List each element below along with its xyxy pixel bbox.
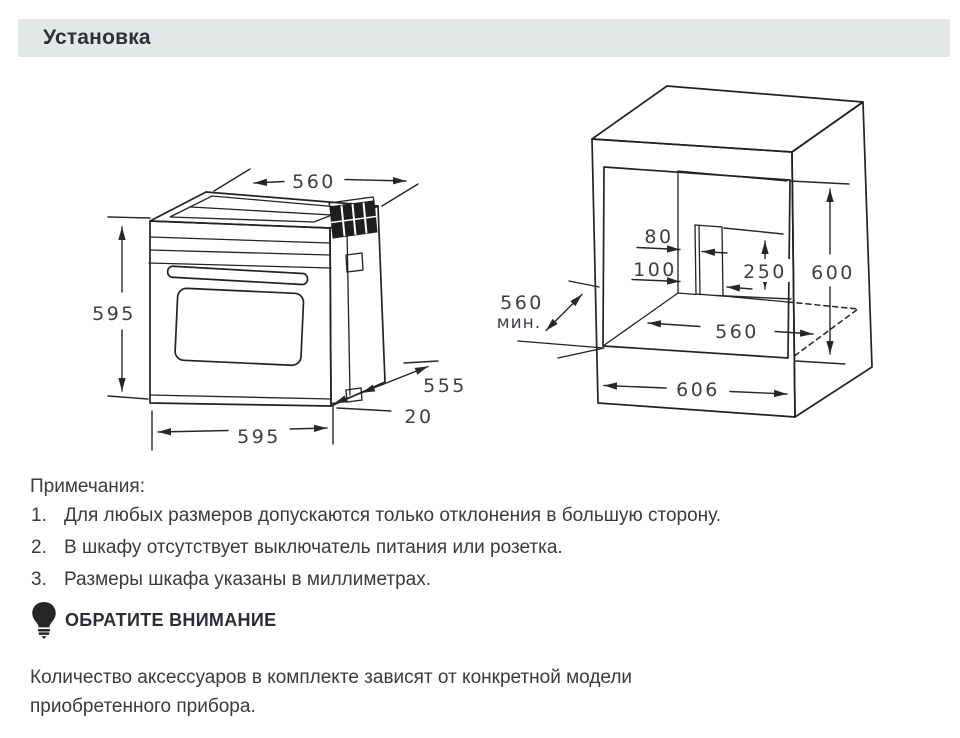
attention-heading: ОБРАТИТЕ ВНИМАНИЕ	[65, 610, 276, 631]
oven-line-art	[149, 192, 385, 406]
closing-line: Количество аксессуаров в комплекте завис…	[30, 663, 632, 692]
notes-heading: Примечания:	[30, 476, 145, 498]
note-number: 3.	[31, 569, 64, 591]
dim-cutout-offset-upper: 80	[637, 226, 727, 253]
page-title: Установка	[18, 26, 151, 50]
note-number: 1.	[31, 505, 64, 527]
svg-text:20: 20	[404, 406, 433, 428]
section-header-bar: Установка	[18, 19, 950, 57]
note-item-3: 3.Размеры шкафа указаны в миллиметрах.	[31, 569, 931, 591]
dim-cutout-offset-lower: 100	[632, 259, 752, 289]
dim-oven-side-depth: 555	[334, 361, 467, 411]
cabinet-back-cutout	[695, 225, 723, 296]
oven-dimensions-diagram: 560 595 595 555 20	[80, 158, 480, 458]
svg-text:100: 100	[633, 259, 677, 281]
dim-min-depth: 560 мин.	[497, 281, 599, 333]
note-text: В шкафу отсутствует выключатель питания …	[64, 537, 563, 558]
cabinet-dimensions-diagram: 80 100 250 600	[480, 78, 880, 426]
note-text: Размеры шкафа указаны в миллиметрах.	[64, 569, 431, 590]
note-item-2: 2.В шкафу отсутствует выключатель питани…	[31, 537, 931, 559]
svg-text:560: 560	[715, 321, 759, 343]
dim-oven-width: 595	[152, 403, 333, 450]
svg-text:250: 250	[743, 261, 787, 283]
note-number: 2.	[31, 537, 64, 559]
dim-oven-front-overhang: 20	[404, 406, 433, 428]
svg-text:595: 595	[237, 426, 281, 448]
oven-door-window	[175, 288, 304, 366]
svg-text:600: 600	[811, 262, 855, 284]
svg-text:мин.: мин.	[497, 313, 541, 333]
svg-text:595: 595	[92, 303, 136, 325]
dim-outer-width: 606	[604, 379, 787, 401]
cabinet-line-art	[518, 86, 872, 417]
dim-oven-height: 595	[92, 217, 150, 399]
installation-page: Установка	[0, 0, 960, 738]
dim-cutout-height: 250	[716, 228, 791, 299]
cabinet-floor-board	[518, 341, 604, 358]
note-item-1: 1.Для любых размеров допускаются только …	[31, 505, 931, 527]
svg-text:606: 606	[676, 379, 720, 401]
attention-note: ОБРАТИТЕ ВНИМАНИЕ	[29, 601, 276, 639]
svg-text:560: 560	[500, 292, 544, 314]
svg-text:560: 560	[292, 171, 336, 193]
svg-text:80: 80	[644, 226, 673, 248]
closing-paragraph: Количество аксессуаров в комплекте завис…	[30, 663, 632, 721]
dim-niche-height: 600	[790, 181, 855, 364]
oven-door-handle	[167, 266, 307, 285]
closing-line: приобретенного прибора.	[30, 692, 632, 721]
lightbulb-icon	[29, 601, 59, 639]
svg-text:555: 555	[423, 375, 467, 397]
note-text: Для любых размеров допускаются только от…	[64, 505, 721, 526]
